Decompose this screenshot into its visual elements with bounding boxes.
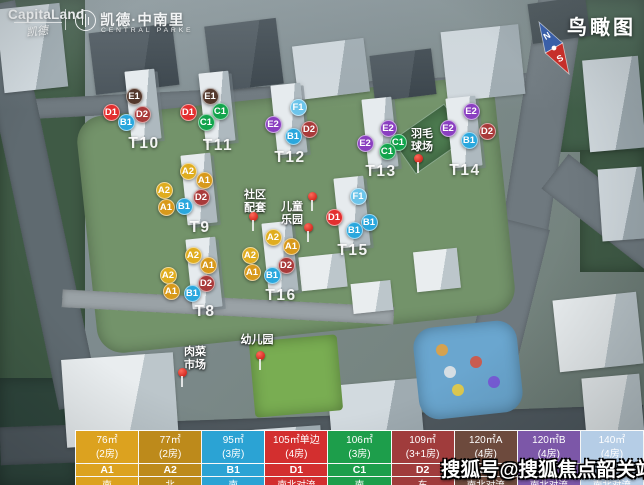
map-pin-icon [308,192,317,201]
unit-badge-c1: C1 [198,114,215,131]
unit-badge-a2: A2 [160,267,177,284]
unit-badge-a1: A1 [244,264,261,281]
unit-badge-d2: D2 [479,123,496,140]
project-subtitle: CENTRAL PARKE [101,27,193,34]
legend-area-cell: 105㎡单边(4房) [265,431,327,463]
unit-badge-b1: B1 [461,132,478,149]
facility-label-社区配套: 社区配套 [244,189,266,214]
tower-label-t12: T12 [274,149,305,167]
tower-label-t11: T11 [203,137,233,155]
unit-badge-a2: A2 [185,247,202,264]
site-map: T10E1D1D2B1T11E1D1C1C1T12F1E2D2B1T13E2E2… [0,0,644,485]
legend-orientation-cell: 北 [139,477,201,485]
project-logo-icon [75,10,96,31]
unit-badge-b1: B1 [361,214,378,231]
legend-orientation-cell: 南 [202,477,264,485]
facility-label-儿童乐园: 儿童乐园 [281,201,303,226]
unit-badge-b1: B1 [285,128,302,145]
legend-orientation-cell: 南 [76,477,138,485]
unit-badge-b1: B1 [118,114,135,131]
legend-area-cell: 106㎡(3房) [328,431,390,463]
unit-badge-d2: D2 [193,189,210,206]
unit-badge-d1: D1 [326,209,343,226]
map-pin-icon [414,154,423,163]
unit-badge-f1: F1 [350,188,367,205]
unit-badge-b1: B1 [264,267,281,284]
capitaland-logo: CapitaLand [8,7,85,22]
unit-badge-a2: A2 [265,229,282,246]
tower-label-t10: T10 [128,135,159,153]
tower-label-t8: T8 [194,303,215,321]
legend-area-cell: 95㎡(3房) [202,431,264,463]
capitaland-chinese-script: 凯德 [25,22,49,40]
aerial-view-page: T10E1D1D2B1T11E1D1C1C1T12F1E2D2B1T13E2E2… [0,0,644,485]
unit-badge-e1: E1 [202,88,219,105]
unit-badge-b1: B1 [184,285,201,302]
unit-badge-a1: A1 [283,238,300,255]
unit-badge-d1: D1 [103,104,120,121]
unit-badge-d2: D2 [134,106,151,123]
unit-badge-a2: A2 [242,247,259,264]
unit-badge-a2: A2 [180,163,197,180]
tower-label-t14: T14 [449,162,480,180]
unit-badge-a2: A2 [156,182,173,199]
unit-badge-a1: A1 [196,172,213,189]
residential-tower [124,69,161,142]
facility-label-肉菜市场: 肉菜市场 [184,346,206,371]
tower-label-t13: T13 [365,163,396,181]
facility-label-幼儿园: 幼儿园 [241,334,274,347]
map-pin-icon [178,368,187,377]
legend-unit-cell: A2 [139,464,201,476]
unit-badge-b1: B1 [346,222,363,239]
map-pin-icon [256,351,265,360]
unit-badge-e2: E2 [265,116,282,133]
legend-unit-cell: B1 [202,464,264,476]
tower-label-t9: T9 [189,219,210,237]
facility-label-羽毛球场: 羽毛球场 [411,128,433,153]
legend-unit-cell: D1 [265,464,327,476]
view-title: 鸟瞰图 [567,11,636,40]
legend-area-cell: 77㎡(2房) [139,431,201,463]
unit-badge-d1: D1 [180,104,197,121]
tower-label-t15: T15 [337,242,368,260]
tower-label-t16: T16 [265,287,296,305]
unit-badge-e2: E2 [440,120,457,137]
unit-badge-c1: C1 [379,143,396,160]
unit-badge-a1: A1 [163,283,180,300]
legend-orientation-cell: 南北对流 [265,477,327,485]
legend-area-cell: 76㎡(2房) [76,431,138,463]
unit-badge-e2: E2 [357,135,374,152]
unit-badge-a1: A1 [158,199,175,216]
unit-badge-a1: A1 [200,257,217,274]
map-pin-icon [249,212,258,221]
unit-badge-c1: C1 [212,103,229,120]
legend-orientation-cell: 南 [328,477,390,485]
unit-badge-e1: E1 [126,88,143,105]
map-pin-icon [304,223,313,232]
sohu-watermark: 搜狐号@搜狐焦点韶关站 [441,453,644,482]
unit-badge-d2: D2 [301,121,318,138]
unit-badge-b1: B1 [176,198,193,215]
legend-unit-cell: C1 [328,464,390,476]
logo-divider [65,9,66,30]
unit-badge-e2: E2 [463,103,480,120]
legend-unit-cell: A1 [76,464,138,476]
unit-badge-f1: F1 [290,99,307,116]
